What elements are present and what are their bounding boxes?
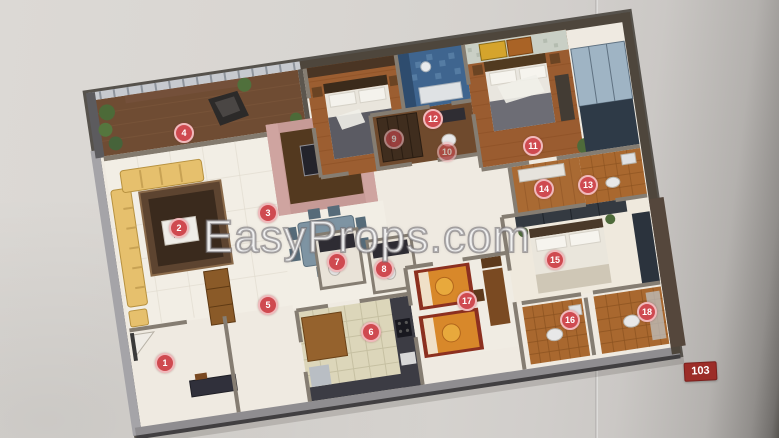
bed: [484, 53, 556, 131]
washbasin: [569, 304, 582, 316]
wall-art: [479, 41, 507, 61]
bathroom: [522, 298, 590, 364]
sink: [400, 352, 417, 366]
washbasin: [621, 153, 636, 165]
kids-bedroom: [406, 255, 521, 361]
kids-bed: [414, 262, 475, 310]
fridge: [309, 364, 332, 387]
coffee-table: [162, 216, 199, 245]
bed: [529, 218, 612, 293]
kitchen-cabinet: [301, 312, 347, 361]
bathroom-2: [594, 286, 670, 353]
stove: [395, 318, 412, 338]
unit-number-badge: 103: [684, 361, 718, 382]
watermark-text: EasyProps.com: [203, 211, 531, 263]
kids-bed: [419, 308, 485, 358]
kitchen: [297, 296, 423, 402]
wall-art: [507, 37, 533, 56]
